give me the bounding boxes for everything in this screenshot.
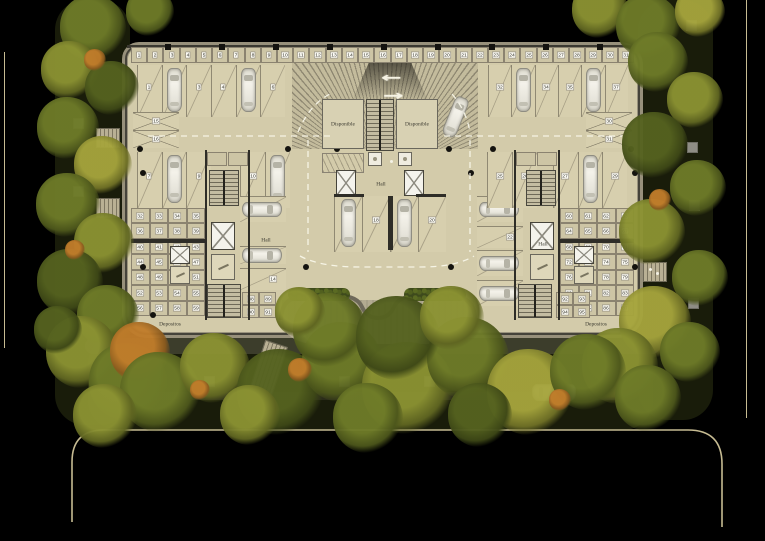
person-figure [656, 272, 659, 275]
tree [275, 287, 325, 337]
person-figure [649, 268, 652, 271]
tree [73, 384, 137, 448]
tree [549, 389, 571, 411]
tree [619, 199, 685, 265]
person-figure [390, 160, 393, 163]
tree [615, 365, 681, 431]
tree [333, 383, 403, 453]
tree [288, 358, 312, 382]
tree [670, 160, 726, 216]
tree [190, 380, 210, 400]
tree [448, 383, 512, 447]
tree [65, 240, 85, 260]
vent-deck [643, 262, 667, 282]
tree [420, 286, 484, 350]
tree [649, 189, 671, 211]
tree [84, 49, 106, 71]
tree [34, 306, 82, 354]
tree [220, 385, 280, 445]
site-plan-canvas: ← → 123456789101112131415161718192021222… [0, 0, 765, 541]
